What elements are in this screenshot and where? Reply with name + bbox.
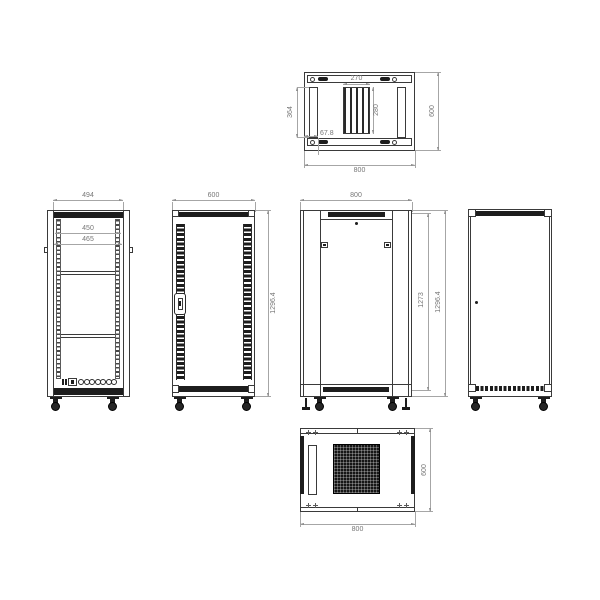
lock-dot (475, 301, 478, 304)
hinge-pin (323, 244, 326, 246)
caster-wheel (539, 402, 548, 411)
dim-label-frame-width: 494 (53, 192, 123, 200)
door-edge-line (392, 210, 393, 397)
dim-line (304, 165, 415, 166)
corner-post-line (123, 210, 124, 397)
arrowhead (429, 428, 431, 432)
screw-mark (313, 503, 318, 508)
caster-mount-ring (310, 77, 315, 82)
pdu-outlet (111, 379, 117, 385)
arrowhead (304, 135, 308, 137)
dim-label-vent-depth: 280 (373, 98, 381, 122)
top-panel-bar (179, 212, 248, 217)
arrowhead (314, 135, 318, 137)
caster (386, 397, 400, 412)
arrowhead (427, 387, 429, 391)
screw-mark (306, 430, 311, 435)
mesh-vent (333, 444, 380, 494)
caster-mount-pill (318, 77, 328, 81)
arrowhead (296, 87, 298, 91)
panel-seam-line (470, 217, 471, 384)
dim-line (297, 87, 298, 138)
foot-stem (305, 398, 307, 407)
arrowhead (304, 164, 308, 166)
dim-line (428, 213, 429, 391)
view-front-frame: 494 450 465 (40, 192, 168, 422)
drawing-canvas: 270 280 364 67.8 600 800 (0, 0, 600, 600)
pdu-switch (65, 379, 67, 385)
arrowhead (437, 72, 439, 76)
door-edge-line (320, 210, 321, 397)
bottom-panel-bar (476, 386, 544, 391)
cabinet-outline (468, 209, 552, 397)
screw-mark (404, 503, 409, 508)
ext-line (318, 138, 319, 155)
caster (537, 397, 551, 412)
ext-line (412, 396, 448, 397)
dim-line (172, 200, 255, 201)
dim-label-depth: 600 (429, 99, 437, 123)
ext-line (297, 137, 309, 138)
cable-slot (397, 87, 406, 138)
shelf-line (61, 334, 115, 335)
dim-label-opening-width: 450 (55, 225, 121, 233)
ext-line (415, 512, 416, 527)
leveling-foot (402, 398, 410, 412)
caster-mount-ring (392, 77, 397, 82)
foot-base (302, 407, 310, 410)
foot-base (402, 407, 410, 410)
arrowhead (427, 213, 429, 217)
dim-label-height: 1296.4 (270, 286, 278, 320)
pdu-switch (62, 379, 64, 385)
caster (173, 397, 187, 412)
arrowhead (343, 83, 347, 85)
pdu-breaker-toggle (71, 380, 74, 384)
caster (313, 397, 327, 412)
arrowhead (267, 210, 269, 214)
center-tick (357, 428, 358, 433)
side-clip (44, 247, 48, 253)
dim-label-width: 800 (300, 192, 412, 200)
dim-line (55, 233, 121, 234)
panel-seam-line (549, 217, 550, 384)
dim-label-slot-offset: 67.8 (320, 130, 340, 138)
cabinet-outline (300, 210, 412, 397)
screw-mark (313, 430, 318, 435)
dim-label-rail-width: 465 (54, 236, 122, 244)
lock-dot (355, 222, 358, 225)
arrowhead (366, 83, 370, 85)
screw-mark (306, 503, 311, 508)
bottom-panel-bar (179, 386, 248, 392)
top-panel-bar (476, 211, 544, 216)
caster-wheel (175, 402, 184, 411)
panel-seam-line (408, 210, 409, 397)
corner-post (468, 209, 476, 217)
corner-post (172, 210, 179, 217)
center-tick (357, 507, 358, 512)
arrowhead (444, 210, 446, 214)
arrowhead (267, 393, 269, 397)
foot-stem (405, 398, 407, 407)
cable-slot (308, 445, 317, 495)
top-vent (343, 87, 370, 134)
edge-rail (300, 436, 304, 494)
corner-post (544, 384, 552, 392)
caster (240, 397, 254, 412)
dim-label-slot-length: 364 (287, 100, 295, 124)
top-panel-bar (328, 212, 385, 217)
arrowhead (300, 523, 304, 525)
corner-post (544, 209, 552, 217)
caster (106, 397, 120, 412)
dim-line (430, 428, 431, 512)
dim-line (54, 244, 122, 245)
dim-line (445, 210, 446, 397)
bottom-panel-bar (54, 388, 123, 395)
caster-wheel (242, 402, 251, 411)
corner-post (172, 385, 179, 393)
dim-label-door-height: 1273 (418, 285, 426, 315)
caster-mount-pill (318, 140, 328, 144)
shelf-line (61, 274, 115, 275)
arrowhead (411, 164, 415, 166)
view-side-vented: 600 1296.4 (164, 192, 296, 422)
screw-mark (397, 503, 402, 508)
view-bottom: 600 800 (288, 420, 456, 540)
arrowhead (437, 147, 439, 151)
dim-line (300, 524, 415, 525)
dim-line (438, 72, 439, 151)
edge-rail (411, 436, 415, 494)
screw-mark (404, 430, 409, 435)
cable-slot (309, 87, 318, 138)
caster (469, 397, 483, 412)
shelf-line (61, 337, 115, 338)
dim-label-vent-width: 270 (343, 75, 370, 83)
caster-mount-pill (380, 77, 390, 81)
ext-line (415, 151, 416, 168)
dim-label-width: 800 (304, 167, 415, 175)
corner-post (248, 385, 255, 393)
arrowhead (372, 130, 374, 134)
dim-line (268, 210, 269, 397)
panel-seam-line (303, 210, 304, 397)
caster-mount-ring (310, 140, 315, 145)
base-line (300, 384, 412, 385)
arrowhead (372, 87, 374, 91)
shelf-line (61, 271, 115, 272)
caster-wheel (315, 402, 324, 411)
caster-wheel (471, 402, 480, 411)
caster-wheel (51, 402, 60, 411)
leveling-foot (302, 398, 310, 412)
view-side-panel (460, 192, 570, 422)
caster-mount-pill (380, 140, 390, 144)
dim-label-depth: 600 (421, 458, 429, 482)
arrowhead (444, 393, 446, 397)
side-clip (129, 247, 133, 253)
arrowhead (429, 508, 431, 512)
top-panel-bar (54, 212, 123, 218)
caster (49, 397, 63, 412)
bottom-panel-bar (323, 387, 389, 392)
arrowhead (296, 134, 298, 138)
door-top-line (320, 219, 393, 220)
hinge-pin (386, 244, 389, 246)
dim-label-width: 800 (300, 526, 415, 534)
dim-label-height: 1296.4 (435, 285, 443, 319)
caster-wheel (388, 402, 397, 411)
dim-line (300, 200, 412, 201)
corner-post (248, 210, 255, 217)
ext-line (297, 87, 309, 88)
view-front-door: 800 1273 (292, 192, 460, 422)
arrowhead (411, 523, 415, 525)
dim-line (53, 200, 123, 201)
screw-mark (397, 430, 402, 435)
dim-label-depth: 600 (172, 192, 255, 200)
side-vent-strip (243, 224, 252, 380)
caster-wheel (108, 402, 117, 411)
ext-line (412, 210, 448, 211)
door-lock-pin (179, 301, 181, 306)
corner-post (468, 384, 476, 392)
caster-mount-ring (392, 140, 397, 145)
view-top: 270 280 364 67.8 600 800 (288, 64, 460, 182)
